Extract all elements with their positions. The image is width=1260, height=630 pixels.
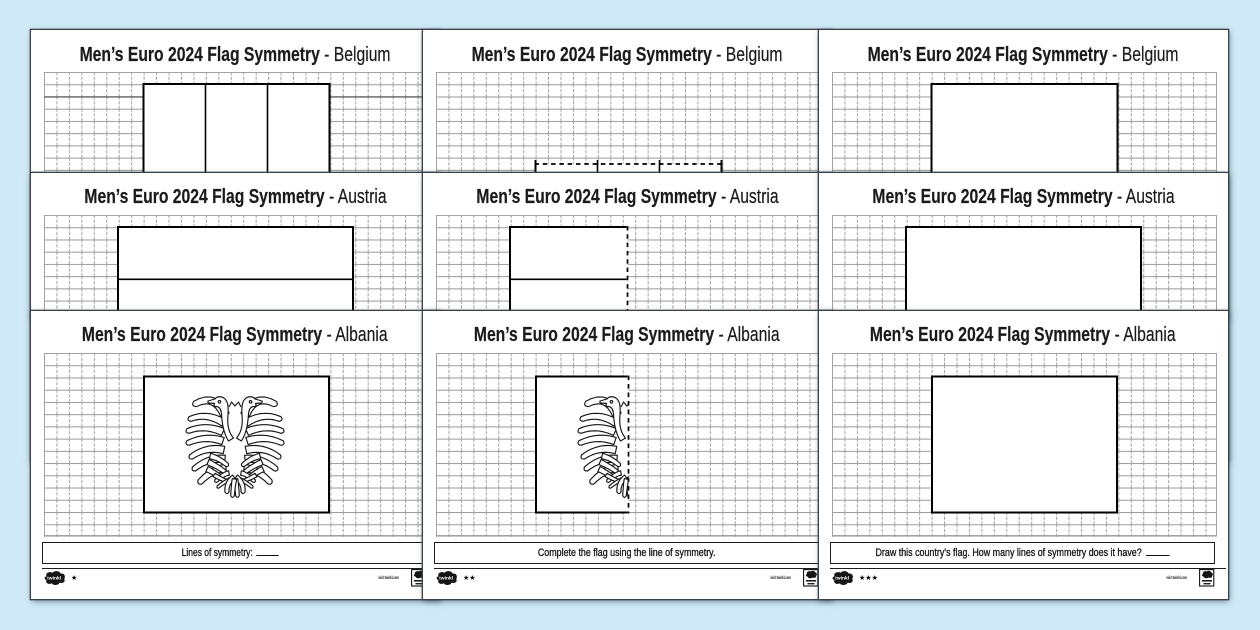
svg-text:twinkl: twinkl xyxy=(835,576,850,582)
svg-text:twinkl: twinkl xyxy=(47,576,62,582)
svg-text:twinkl: twinkl xyxy=(439,576,454,582)
